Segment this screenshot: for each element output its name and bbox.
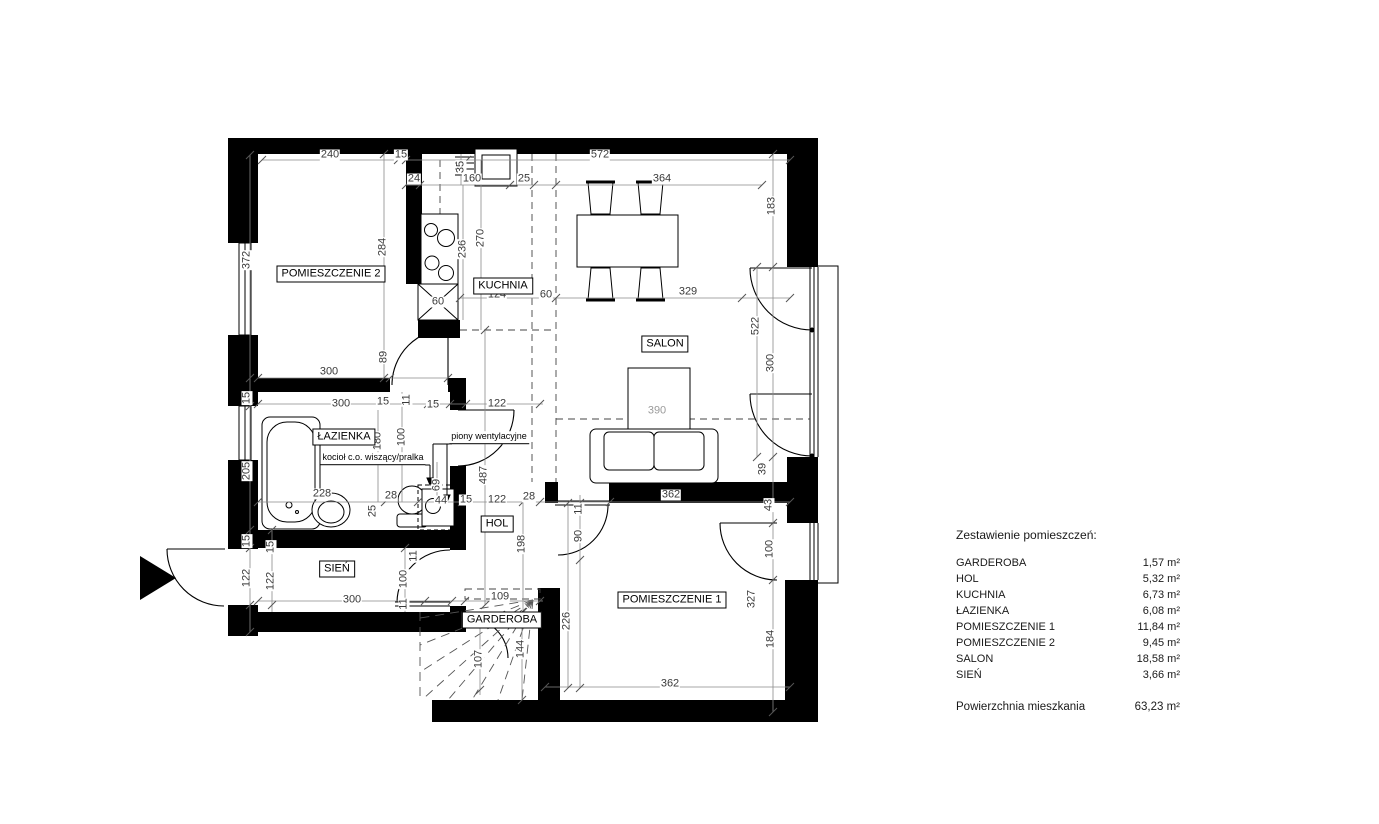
entrance-arrow-icon bbox=[140, 556, 176, 600]
legend-total-value: 63,23 m² bbox=[1135, 701, 1180, 713]
floor-plan-page: 2401557224160253643537228489300236270124… bbox=[0, 0, 1379, 824]
dimension-label: 572 bbox=[590, 150, 610, 161]
window-lazienka bbox=[239, 406, 251, 460]
legend-total-row: Powierzchnia mieszkania 63,23 m² bbox=[956, 701, 1180, 713]
dining-table bbox=[577, 215, 678, 267]
legend-room-area: 18,58 m² bbox=[1137, 651, 1180, 667]
legend-room-area: 6,08 m² bbox=[1143, 603, 1180, 619]
entrance-door bbox=[167, 549, 225, 606]
dimension-label: 11 bbox=[399, 597, 410, 610]
legend-room-area: 5,32 m² bbox=[1143, 571, 1180, 587]
legend-room-area: 6,73 m² bbox=[1143, 587, 1180, 603]
dimension-label: 228 bbox=[312, 489, 332, 500]
dimension-label: 107 bbox=[474, 649, 485, 669]
legend-row: SIEŃ3,66 m² bbox=[956, 667, 1180, 683]
dimension-label: 15 bbox=[266, 540, 277, 554]
dimension-label: 390 bbox=[647, 406, 667, 417]
dimension-label: 90 bbox=[574, 529, 585, 543]
dimension-label: 122 bbox=[487, 495, 507, 506]
dimension-label: 25 bbox=[368, 504, 379, 518]
dimension-label: 240 bbox=[320, 150, 340, 161]
dimension-label: 11 bbox=[574, 502, 585, 515]
dimension-label: 327 bbox=[747, 589, 758, 609]
room-label: ŁAZIENKA bbox=[312, 429, 375, 446]
dimension-label: 15 bbox=[394, 150, 408, 161]
legend-row: SALON18,58 m² bbox=[956, 651, 1180, 667]
dimension-label: 100 bbox=[397, 427, 408, 447]
salon-french-door-lower bbox=[750, 394, 815, 459]
legend-room-name: POMIESZCZENIE 2 bbox=[956, 635, 1055, 651]
legend-room-name: POMIESZCZENIE 1 bbox=[956, 619, 1055, 635]
dimension-label: 11 bbox=[402, 393, 413, 406]
dimension-label: 362 bbox=[661, 490, 681, 501]
legend-room-name: ŁAZIENKA bbox=[956, 603, 1009, 619]
legend: Zestawienie pomieszczeń: GARDEROBA1,57 m… bbox=[956, 528, 1180, 713]
room-label: SIEŃ bbox=[319, 561, 355, 578]
dimension-label: 15 bbox=[459, 495, 473, 506]
dimension-label: 89 bbox=[379, 350, 390, 364]
dimension-label: 109 bbox=[490, 592, 510, 603]
dimension-label: 183 bbox=[767, 196, 778, 216]
dimension-label: 487 bbox=[479, 465, 490, 485]
dimension-label: 35 bbox=[456, 160, 467, 174]
legend-total-label: Powierzchnia mieszkania bbox=[956, 701, 1085, 713]
legend-room-name: GARDEROBA bbox=[956, 555, 1026, 571]
dimension-label: 300 bbox=[319, 367, 339, 378]
dimension-label: 300 bbox=[766, 353, 777, 373]
legend-row: HOL5,32 m² bbox=[956, 571, 1180, 587]
sofa bbox=[590, 429, 718, 483]
legend-room-area: 9,45 m² bbox=[1143, 635, 1180, 651]
legend-title: Zestawienie pomieszczeń: bbox=[956, 528, 1180, 542]
legend-items: GARDEROBA1,57 m²HOL5,32 m²KUCHNIA6,73 m²… bbox=[956, 555, 1180, 683]
dimension-label: 160 bbox=[462, 174, 482, 185]
legend-row: ŁAZIENKA6,08 m² bbox=[956, 603, 1180, 619]
dimension-label: 25 bbox=[517, 174, 531, 185]
dimension-label: 364 bbox=[652, 174, 672, 185]
dimension-label: 205 bbox=[242, 461, 253, 481]
dimension-label: 198 bbox=[517, 534, 528, 554]
legend-room-area: 11,84 m² bbox=[1137, 619, 1180, 635]
room-label: KUCHNIA bbox=[473, 278, 533, 295]
dimension-label: 100 bbox=[399, 569, 410, 589]
annotation-label: piony wentylacyjne bbox=[449, 431, 529, 444]
legend-room-name: HOL bbox=[956, 571, 979, 587]
dimension-label: 69 bbox=[432, 478, 443, 492]
dimension-label: 24 bbox=[407, 174, 421, 185]
dimension-label: 226 bbox=[562, 611, 573, 631]
dimension-label: 372 bbox=[242, 250, 253, 270]
dimension-label: 28 bbox=[522, 492, 536, 503]
dimension-label: 15 bbox=[242, 534, 253, 548]
dimension-label: 362 bbox=[660, 679, 680, 690]
dimension-label: 122 bbox=[242, 568, 253, 588]
dimension-label: 60 bbox=[539, 290, 553, 301]
dimension-label: 100 bbox=[765, 539, 776, 559]
annotation-label: kocioł c.o. wiszący/pralka bbox=[320, 452, 425, 465]
legend-row: POMIESZCZENIE 29,45 m² bbox=[956, 635, 1180, 651]
dimension-label: 144 bbox=[516, 639, 527, 659]
legend-room-name: SALON bbox=[956, 651, 993, 667]
dimension-label: 329 bbox=[678, 287, 698, 298]
room-label: GARDEROBA bbox=[462, 612, 542, 629]
dimension-label: 11 bbox=[409, 549, 420, 562]
room-label: HOL bbox=[481, 516, 514, 533]
coffee-table bbox=[628, 368, 690, 430]
room-label: SALON bbox=[641, 336, 688, 353]
dimension-label: 300 bbox=[342, 595, 362, 606]
dimension-label: 60 bbox=[431, 297, 445, 308]
legend-room-area: 3,66 m² bbox=[1143, 667, 1180, 683]
room-label: POMIESZCZENIE 2 bbox=[276, 266, 385, 283]
dimension-label: 15 bbox=[242, 391, 253, 405]
legend-row: GARDEROBA1,57 m² bbox=[956, 555, 1180, 571]
dimension-label: 184 bbox=[766, 629, 777, 649]
dimension-label: 270 bbox=[476, 228, 487, 248]
dimension-label: 122 bbox=[487, 399, 507, 410]
dimension-label: 28 bbox=[384, 491, 398, 502]
dimension-label: 44 bbox=[434, 496, 448, 507]
legend-row: POMIESZCZENIE 111,84 m² bbox=[956, 619, 1180, 635]
legend-room-name: SIEŃ bbox=[956, 667, 982, 683]
dimension-label: 236 bbox=[458, 239, 469, 259]
dimension-label: 122 bbox=[266, 571, 277, 591]
bathtub bbox=[262, 417, 320, 529]
dimension-label: 300 bbox=[331, 399, 351, 410]
dimension-label: 522 bbox=[751, 316, 762, 336]
legend-room-name: KUCHNIA bbox=[956, 587, 1006, 603]
legend-room-area: 1,57 m² bbox=[1143, 555, 1180, 571]
dimension-label: 284 bbox=[378, 237, 389, 257]
dimension-label: 15 bbox=[426, 400, 440, 411]
dimension-label: 43 bbox=[764, 498, 775, 512]
legend-row: KUCHNIA6,73 m² bbox=[956, 587, 1180, 603]
dimension-label: 39 bbox=[758, 462, 769, 476]
room-label: POMIESZCZENIE 1 bbox=[617, 592, 726, 609]
dimension-label: 15 bbox=[376, 397, 390, 408]
